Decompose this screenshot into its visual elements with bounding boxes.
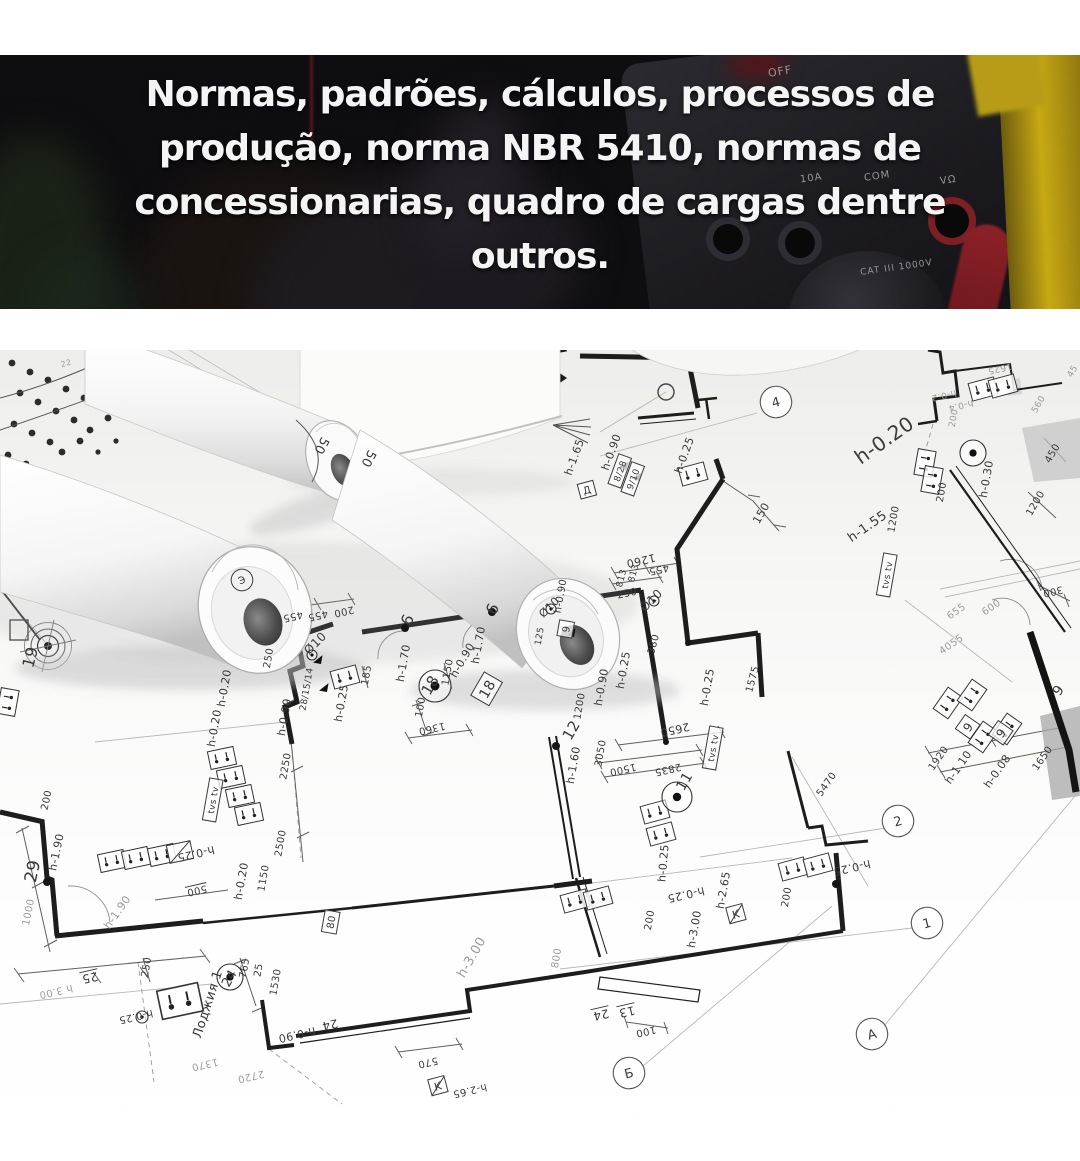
annotation-label: 25 [252,963,265,978]
headline: Normas, padrões, cálculos, processos de … [0,68,1080,284]
blueprint-svg: 5050Э19224h-1.65Дh-0.908/289/10h-0.25150… [0,350,1080,1161]
headline-line-2: produção, norma NBR 5410, normas de [0,122,1080,176]
plan-symbol-dot [663,739,669,745]
plan-symbol-dot [685,640,691,646]
plan-symbol-dot [552,742,560,750]
svg-text:80: 80 [325,915,338,930]
annotation-label: 9 [557,620,575,638]
promo-image: OFF10ACOMVΩCAT III 1000V Normas, padrões… [0,0,1080,1161]
blueprint-photo: 5050Э19224h-1.65Дh-0.908/289/10h-0.25150… [0,350,1080,1161]
svg-text:25: 25 [252,963,265,978]
plan-symbol-dot [832,880,840,888]
plan-symbol-dot [43,878,51,886]
headline-line-3: concessionarias, quadro de cargas dentre [0,176,1080,230]
headline-line-4: outros. [0,230,1080,284]
annotation-label: K [726,904,746,924]
annotation-label: K [428,1076,448,1096]
headline-line-1: Normas, padrões, cálculos, processos de [0,68,1080,122]
annotation-label: 80 [321,910,340,934]
